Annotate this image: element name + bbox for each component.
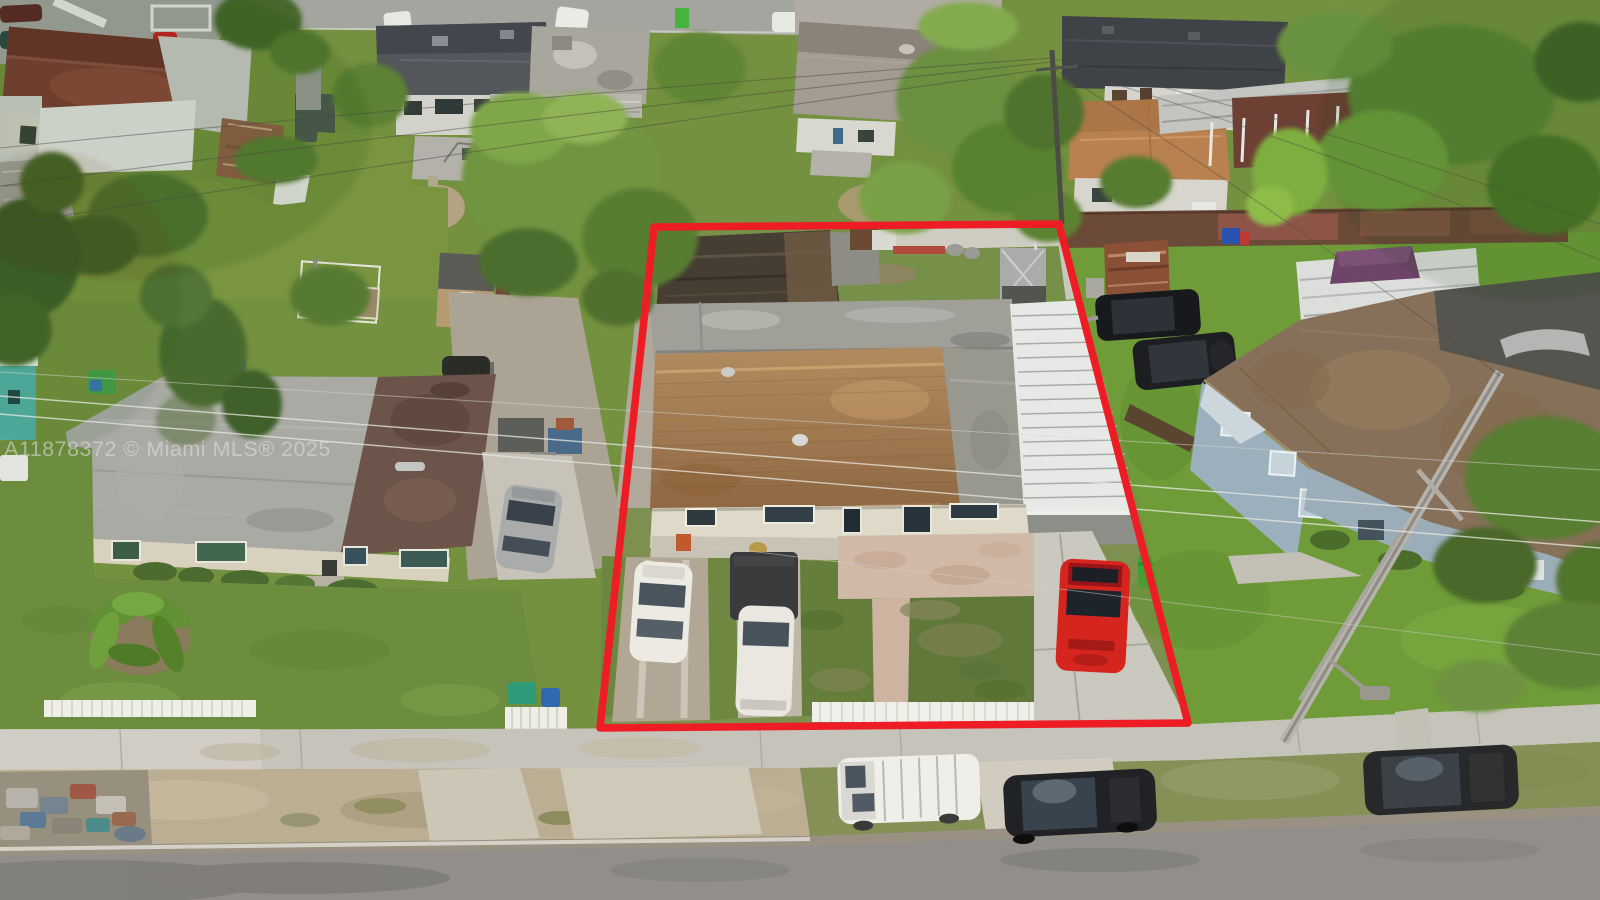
svg-text:A11878372 © Miami MLS® 2025: A11878372 © Miami MLS® 2025 bbox=[4, 437, 331, 461]
